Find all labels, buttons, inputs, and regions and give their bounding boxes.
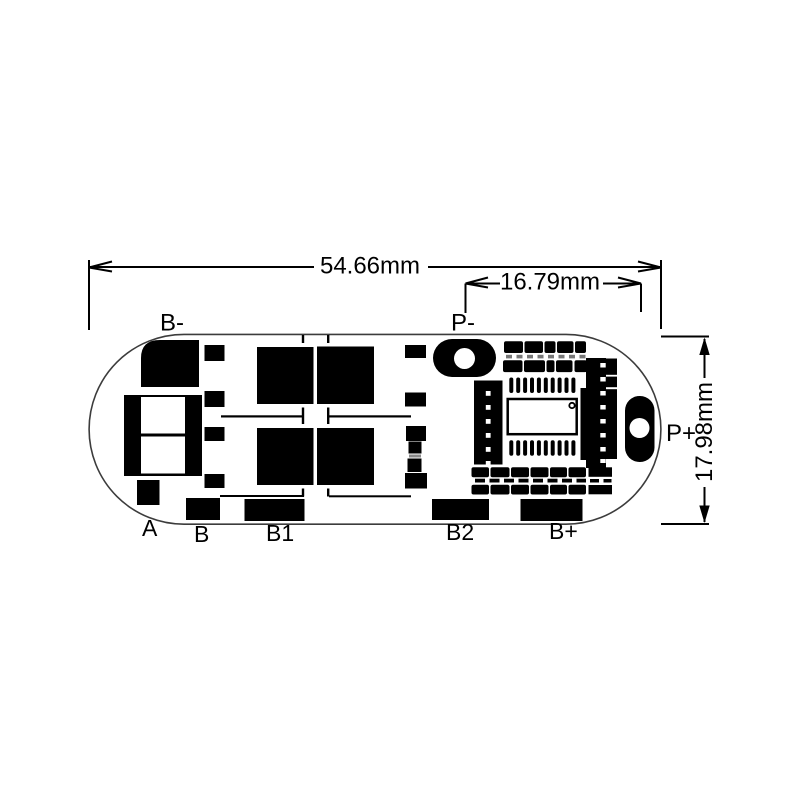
svg-text:B-: B- <box>160 310 184 337</box>
svg-text:A: A <box>142 515 158 541</box>
svg-text:B1: B1 <box>266 520 294 546</box>
svg-text:54.66mm: 54.66mm <box>320 253 420 280</box>
svg-text:B+: B+ <box>549 518 578 544</box>
svg-text:16.79mm: 16.79mm <box>500 269 600 296</box>
svg-text:B: B <box>194 521 209 547</box>
svg-text:B2: B2 <box>446 519 474 545</box>
svg-text:P+: P+ <box>666 420 696 447</box>
svg-text:P-: P- <box>451 310 475 337</box>
